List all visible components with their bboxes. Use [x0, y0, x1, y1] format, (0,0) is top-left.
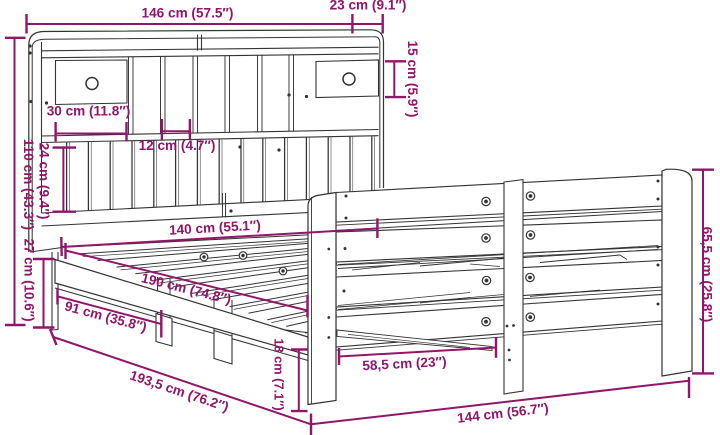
- svg-text:65,5 cm (25.8″): 65,5 cm (25.8″): [699, 227, 714, 323]
- svg-text:18 cm (7.1″): 18 cm (7.1″): [272, 338, 287, 410]
- svg-text:30 cm (11.8″): 30 cm (11.8″): [47, 104, 131, 119]
- svg-text:24 cm (9.4″): 24 cm (9.4″): [36, 143, 51, 220]
- svg-text:12 cm (4.7″): 12 cm (4.7″): [139, 138, 216, 153]
- svg-text:146 cm (57.5″): 146 cm (57.5″): [142, 6, 234, 21]
- svg-text:110 cm (43.3″): 110 cm (43.3″): [21, 139, 36, 230]
- svg-text:15 cm (5.9″): 15 cm (5.9″): [405, 41, 420, 118]
- svg-text:27 cm (10.6″): 27 cm (10.6″): [21, 238, 36, 321]
- svg-text:23 cm (9.1″): 23 cm (9.1″): [330, 0, 407, 12]
